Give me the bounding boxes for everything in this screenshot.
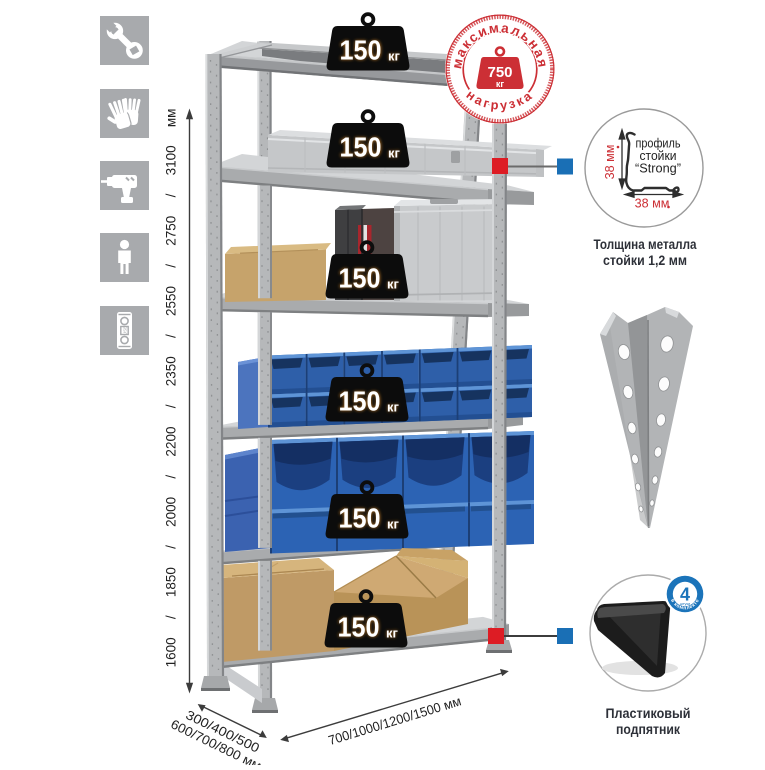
svg-text:Пластиковый: Пластиковый — [606, 706, 691, 721]
svg-text:подпятник: подпятник — [616, 722, 680, 737]
svg-text:USB: USB — [123, 326, 128, 335]
svg-text:“Strong”: “Strong” — [635, 162, 681, 176]
svg-text:38 мм: 38 мм — [603, 145, 617, 180]
svg-text:38 мм: 38 мм — [635, 197, 670, 211]
svg-text:кг: кг — [496, 79, 505, 89]
svg-text:Толщина металла: Толщина металла — [594, 237, 697, 252]
svg-text:1600 / 1850 / 2000 / 2200 / 23: 1600 / 1850 / 2000 / 2200 / 2350 / 2550 … — [164, 109, 179, 668]
svg-text:стойки 1,2 мм: стойки 1,2 мм — [603, 253, 687, 268]
